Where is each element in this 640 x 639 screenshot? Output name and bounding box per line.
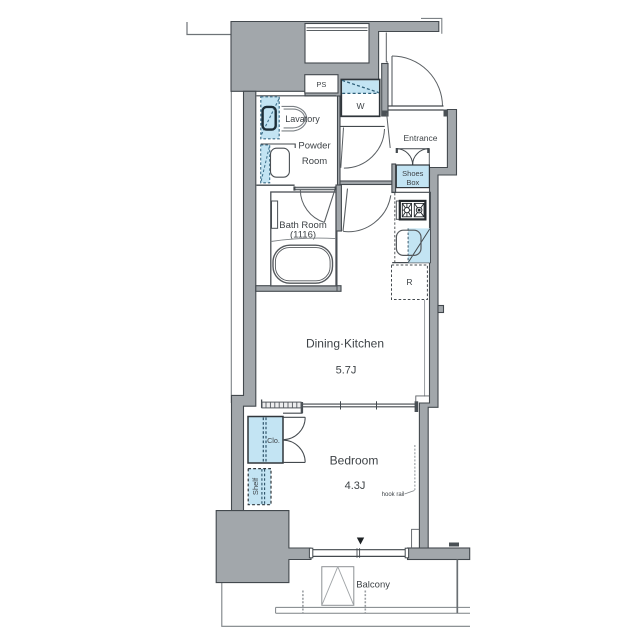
- svg-text:PS: PS: [316, 80, 326, 89]
- svg-text:Dining·Kitchen: Dining·Kitchen: [306, 337, 384, 351]
- svg-text:Balcony: Balcony: [356, 580, 390, 591]
- svg-text:Clo.: Clo.: [267, 436, 280, 445]
- svg-text:Box: Box: [406, 178, 419, 187]
- svg-text:hook rail: hook rail: [382, 492, 405, 498]
- svg-text:4.3J: 4.3J: [345, 480, 366, 492]
- svg-text:Lavatory: Lavatory: [285, 114, 320, 124]
- svg-text:Bedroom: Bedroom: [330, 454, 379, 468]
- svg-text:W: W: [356, 101, 364, 111]
- svg-text:Entrance: Entrance: [403, 133, 437, 143]
- svg-text:Room: Room: [302, 156, 327, 167]
- svg-text:Shoes: Shoes: [402, 169, 424, 178]
- svg-text:Shelf: Shelf: [251, 477, 260, 495]
- svg-text:5.7J: 5.7J: [336, 365, 357, 377]
- svg-text:Powder: Powder: [298, 141, 330, 152]
- svg-text:R: R: [406, 277, 412, 287]
